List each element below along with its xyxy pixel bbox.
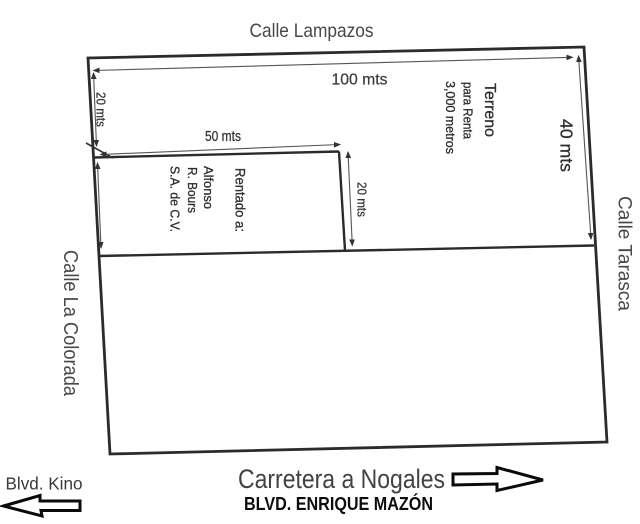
svg-text:3,000 metros: 3,000 metros xyxy=(443,81,457,154)
svg-text:Carretera a Nogales: Carretera a Nogales xyxy=(238,464,445,494)
svg-text:100 mts: 100 mts xyxy=(332,72,388,89)
svg-text:20 mts: 20 mts xyxy=(355,182,369,217)
svg-text:S.A. de C.V.: S.A. de C.V. xyxy=(168,166,183,232)
svg-text:Calle Tarasca: Calle Tarasca xyxy=(614,196,636,311)
svg-text:Terreno: Terreno xyxy=(481,83,498,137)
svg-text:50 mts: 50 mts xyxy=(205,129,241,145)
svg-text:para Renta: para Renta xyxy=(461,82,475,139)
svg-text:20 mts: 20 mts xyxy=(94,92,108,127)
svg-text:Calle Lampazos: Calle Lampazos xyxy=(250,20,374,42)
svg-text:Rentado a:: Rentado a: xyxy=(233,168,249,232)
svg-text:Calle La Colorada: Calle La Colorada xyxy=(59,250,81,397)
svg-text:R. Bours: R. Bours xyxy=(185,167,200,213)
svg-text:40 mts: 40 mts xyxy=(557,119,577,172)
svg-text:Alfonso: Alfonso xyxy=(201,166,216,209)
svg-text:BLVD. ENRIQUE MAZÓN: BLVD. ENRIQUE MAZÓN xyxy=(244,493,433,514)
svg-text:Blvd. Kino: Blvd. Kino xyxy=(6,474,83,494)
